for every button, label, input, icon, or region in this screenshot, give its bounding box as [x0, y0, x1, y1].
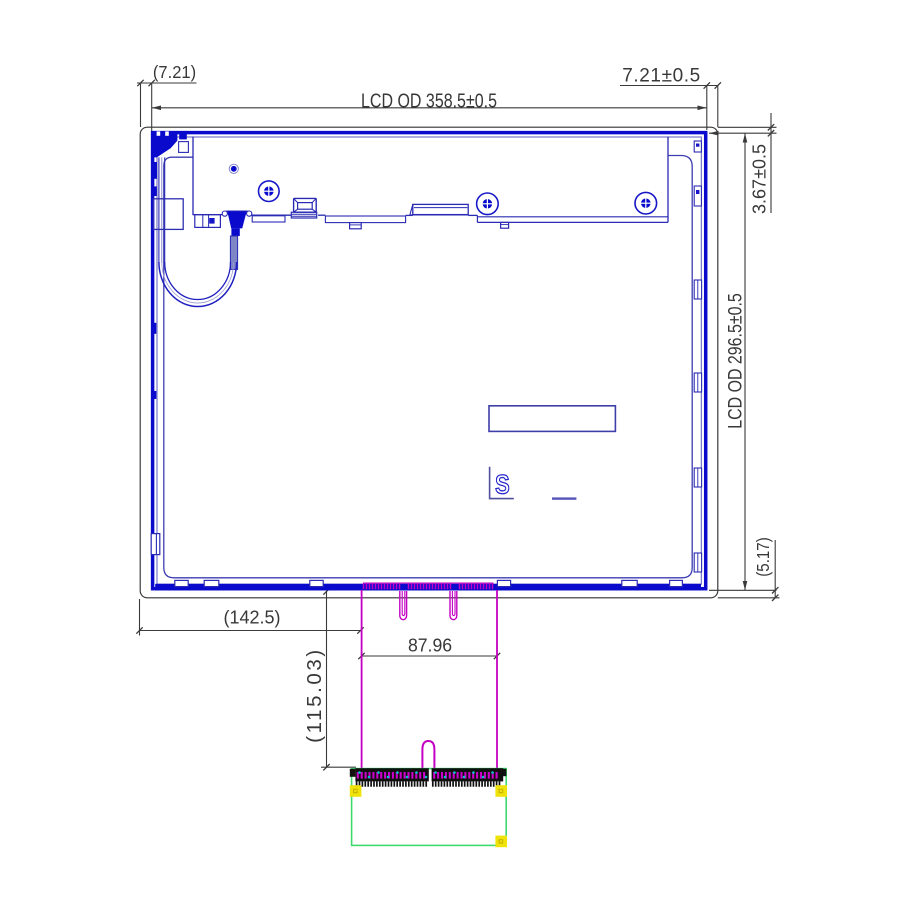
svg-text:(142.5): (142.5): [223, 608, 280, 628]
svg-text:(7.21): (7.21): [153, 62, 196, 83]
svg-text:LCD OD 296.5±0.5: LCD OD 296.5±0.5: [724, 293, 746, 429]
svg-text:LCD OD 358.5±0.5: LCD OD 358.5±0.5: [361, 90, 497, 112]
svg-text:87.96: 87.96: [408, 635, 452, 655]
svg-text:3.67±0.5: 3.67±0.5: [750, 144, 770, 214]
svg-text:(115.03): (115.03): [303, 647, 326, 743]
svg-text:7.21±0.5: 7.21±0.5: [622, 66, 701, 87]
svg-text:S: S: [495, 471, 509, 501]
svg-text:(5.17): (5.17): [753, 537, 774, 576]
